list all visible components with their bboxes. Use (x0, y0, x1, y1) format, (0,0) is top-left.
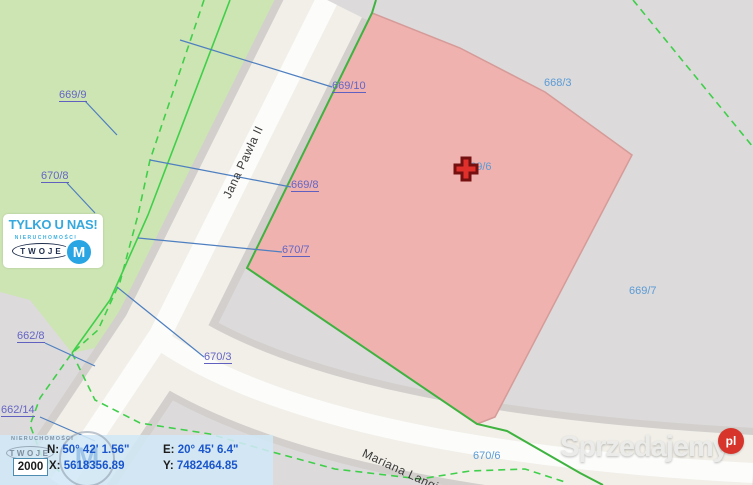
parcel-label-669-10: 669/10 (332, 80, 366, 93)
promo-badge: TYLKO U NAS! NIERUCHOMOŚCI TWOJE M (3, 214, 103, 268)
site-watermark-tld-badge: pl (718, 428, 744, 454)
promo-headline: TYLKO U NAS! (3, 217, 103, 232)
x-coordinate-readout: X: 5618356.89 (49, 460, 124, 472)
site-watermark-name: Sprzedajemy (560, 431, 728, 463)
latitude-readout: N: 50° 42' 1.56" (47, 444, 130, 456)
parcel-label-670-8: 670/8 (41, 170, 69, 183)
parcel-label-668-3: 668/3 (544, 77, 572, 89)
parcel-label-669-7: 669/7 (629, 285, 657, 297)
y-coordinate-readout: Y: 7482464.85 (163, 460, 238, 472)
parcel-label-670-6: 670/6 (473, 450, 501, 462)
y-coordinate-value: 7482464.85 (177, 460, 238, 472)
site-watermark: Sprzedajemy pl (560, 431, 728, 464)
longitude-value: 20° 45' 6.4" (178, 444, 239, 456)
parcel-label-669-9: 669/9 (59, 89, 87, 102)
x-coordinate-value: 5618356.89 (64, 460, 125, 472)
longitude-label: E: (163, 444, 175, 456)
brand-logo-m: M (65, 238, 93, 266)
parcel-label-662-14: 662/14 (1, 404, 35, 417)
latitude-value: 50° 42' 1.56" (62, 444, 129, 456)
scale-input[interactable]: 2000 (13, 458, 48, 476)
parcel-label-670-7: 670/7 (282, 244, 310, 257)
x-coordinate-label: X: (49, 460, 61, 472)
parcel-label-662-8: 662/8 (17, 330, 45, 343)
parcel-label-669-8: 669/8 (291, 179, 319, 192)
cadastral-map-view[interactable]: 669/9670/8669/10669/8670/7670/3662/8662/… (0, 0, 753, 485)
location-cross-marker (452, 155, 480, 183)
y-coordinate-label: Y: (163, 460, 174, 472)
longitude-readout: E: 20° 45' 6.4" (163, 444, 238, 456)
parcel-label-670-3: 670/3 (204, 351, 232, 364)
latitude-label: N: (47, 444, 59, 456)
map-canvas (0, 0, 753, 485)
brand-name-oval: TWOJE (12, 243, 72, 259)
